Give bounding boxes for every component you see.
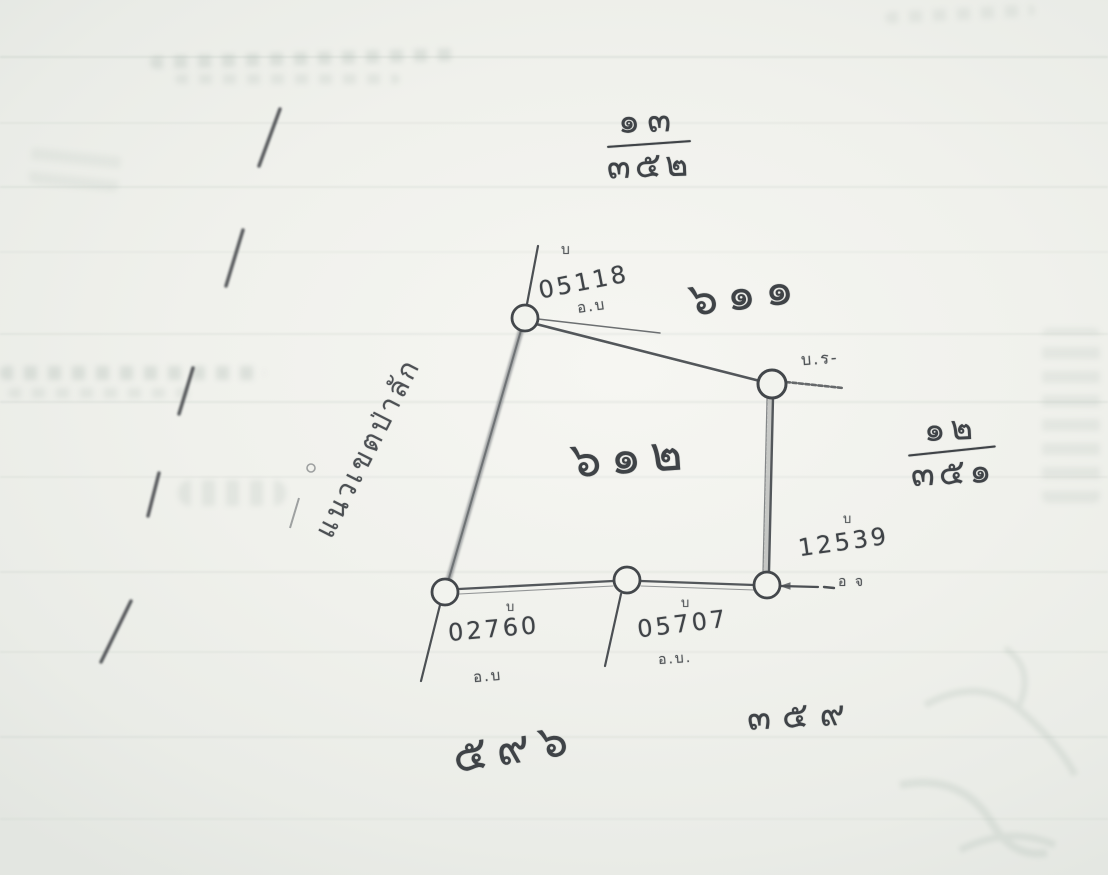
scanned-survey-sketch: ๑๓ ๓๕๒ ๖๑๑ ๖๑๒ ๑๒ ๓๕๑ ๕๙๖ ๓๕๙ แนวเขตป่าล… bbox=[0, 0, 1108, 875]
marker-tag: บ bbox=[506, 601, 514, 614]
marker-circle-bottom-left bbox=[432, 579, 458, 605]
marker-tag: บ bbox=[843, 513, 851, 526]
marker-tag: บ bbox=[681, 597, 689, 610]
parcel-fraction-top: ๑๓ ๓๕๒ bbox=[605, 103, 693, 186]
marker-number: 02760 bbox=[447, 613, 540, 645]
corner-note: บ.ร- bbox=[800, 350, 839, 369]
marker-note: อ.บ bbox=[472, 668, 503, 685]
fraction-denominator: ๓๕๑ bbox=[910, 454, 996, 493]
parcel-fraction-right: ๑๒ ๓๕๑ bbox=[906, 410, 998, 494]
fraction-numerator: ๑๒ bbox=[923, 411, 979, 448]
bleedthrough-swirls bbox=[900, 648, 1075, 854]
marker-circle-upper-right bbox=[758, 370, 786, 398]
fraction-denominator: ๓๕๒ bbox=[606, 148, 693, 186]
dashed-boundary-line bbox=[101, 109, 280, 662]
parcel-label-359: ๓๕๙ bbox=[746, 696, 857, 737]
stray-pen-marks bbox=[290, 464, 315, 528]
marker-circle-top bbox=[512, 305, 538, 331]
parcel-label-611: ๖๑๑ bbox=[686, 263, 805, 323]
marker-circle-lower-right bbox=[754, 572, 780, 598]
marker-tag: บ bbox=[561, 243, 570, 257]
fraction-numerator: ๑๓ bbox=[617, 103, 678, 140]
parcel-label-612: ๖๑๒ bbox=[568, 428, 693, 485]
marker-note: อ.บ. bbox=[658, 651, 693, 667]
marker-note: อ จ bbox=[838, 575, 865, 589]
marker-circle-bottom-middle bbox=[614, 567, 640, 593]
marker-note: อ.บ bbox=[576, 297, 607, 316]
